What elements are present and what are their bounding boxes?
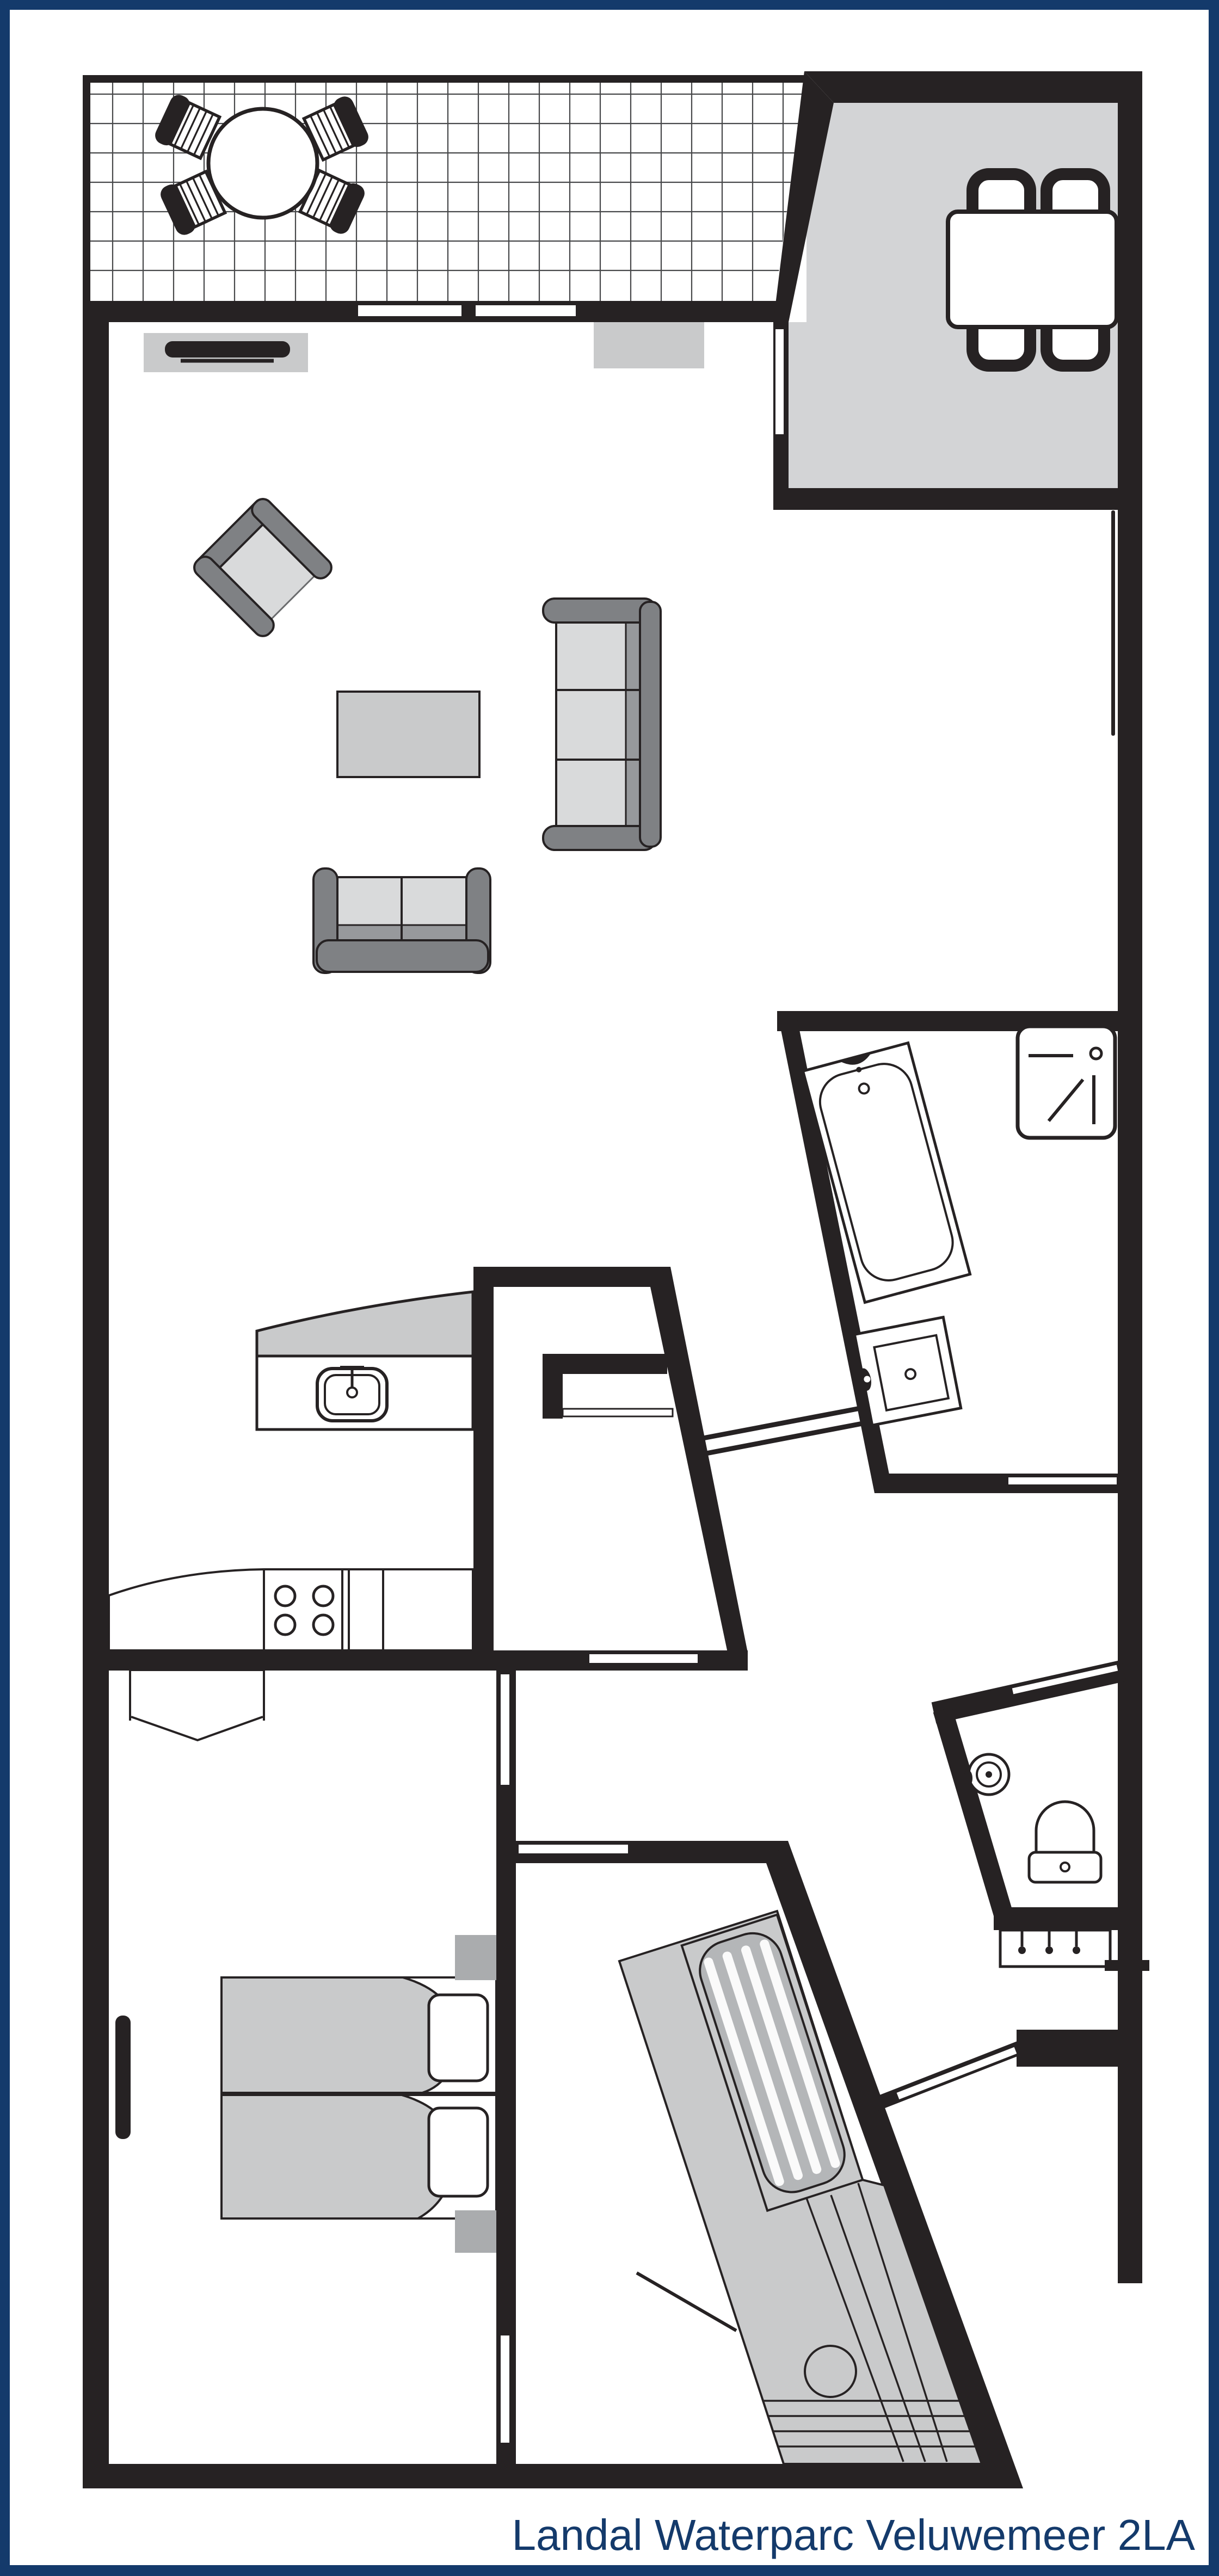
svg-text:Landal Waterparc Veluwemeer 2L: Landal Waterparc Veluwemeer 2LA	[512, 2511, 1195, 2559]
